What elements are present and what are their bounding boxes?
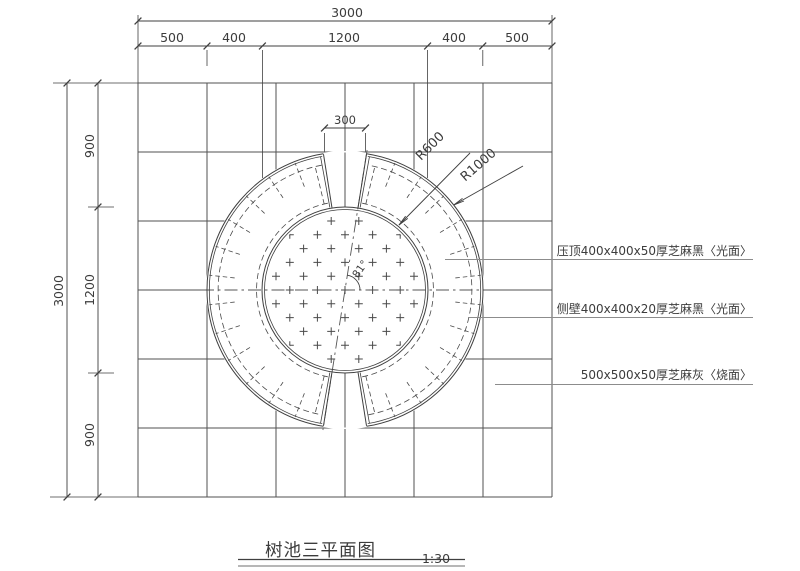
dim-top-seg-3: 1200: [328, 30, 360, 45]
dim-top-seg-5: 500: [505, 30, 529, 45]
callout-coping: 压顶400x400x50厚芝麻黑〈光面〉: [557, 243, 752, 258]
radius-r600-label: R600: [413, 129, 448, 164]
dim-left-seg-2: 1200: [82, 274, 97, 306]
dim-top-seg-2: 400: [222, 30, 246, 45]
drawing-scale: 1:30: [422, 551, 450, 566]
dim-top-total: 3000: [331, 5, 363, 20]
dim-left-seg-3: 900: [82, 423, 97, 447]
tree-pit-plan-sheet: 3000 500 400 1200 400 500 3000 900 1200 …: [0, 0, 800, 571]
tree-pit-plan-drawing: 3000 500 400 1200 400 500 3000 900 1200 …: [0, 0, 800, 571]
dim-gap-300: 300: [334, 113, 356, 127]
dim-top-seg-4: 400: [442, 30, 466, 45]
callout-paving: 500x500x50厚芝麻灰〈烧面〉: [581, 367, 752, 382]
dim-left-total: 3000: [51, 275, 66, 307]
drawing-title: 树池三平面图: [265, 541, 376, 561]
dim-left-seg-1: 900: [82, 134, 97, 158]
dim-top-seg-1: 500: [160, 30, 184, 45]
callout-sidewall: 侧壁400x400x20厚芝麻黑〈光面〉: [557, 301, 752, 316]
